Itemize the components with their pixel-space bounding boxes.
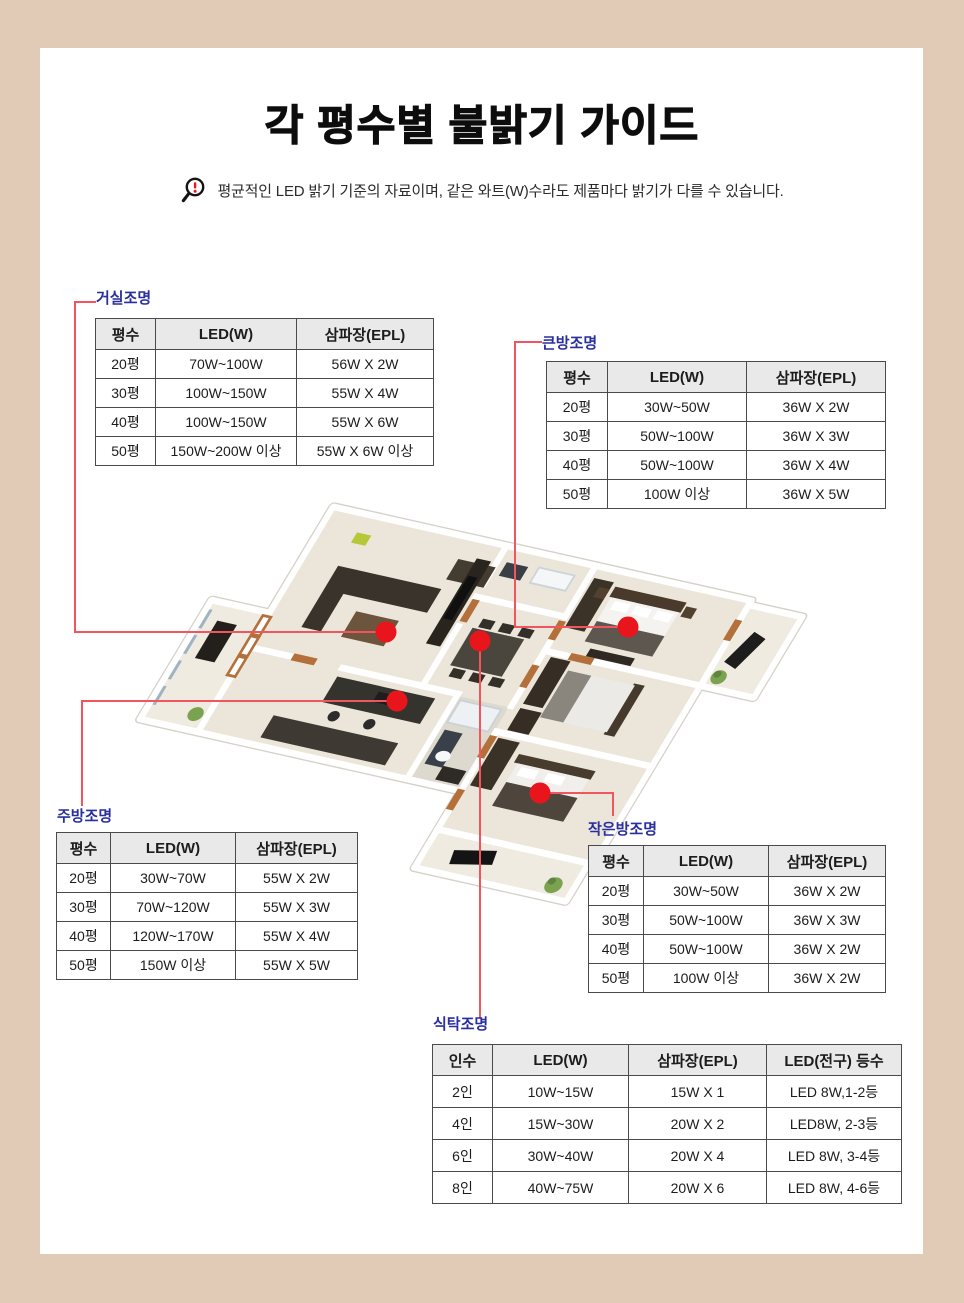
table-cell: 36W X 3W	[769, 906, 886, 935]
table-row: 20평30W~50W36W X 2W	[589, 877, 886, 906]
table-row: 50평150W 이상55W X 5W	[57, 951, 358, 980]
magnifier-alert-icon	[180, 176, 208, 204]
table-cell: 30W~50W	[608, 393, 747, 422]
kitchen-lighting-table: 평수LED(W)삼파장(EPL)20평30W~70W55W X 2W30평70W…	[56, 832, 357, 980]
column-header: LED(W)	[156, 319, 297, 350]
data-table: 인수LED(W)삼파장(EPL)LED(전구) 등수2인10W~15W15W X…	[432, 1044, 902, 1204]
table-row: 40평50W~100W36W X 4W	[547, 451, 886, 480]
table-cell: 40평	[57, 922, 111, 951]
column-header: LED(W)	[111, 833, 236, 864]
table-cell: 50평	[547, 480, 608, 509]
table-cell: 30평	[547, 422, 608, 451]
table-row: 50평100W 이상36W X 5W	[547, 480, 886, 509]
label-kitchen-lighting: 주방조명	[57, 805, 112, 826]
table-cell: 15W~30W	[493, 1108, 629, 1140]
table-header-row: 평수LED(W)삼파장(EPL)	[96, 319, 434, 350]
table-cell: 50W~100W	[608, 422, 747, 451]
table-cell: 150W~200W 이상	[156, 437, 297, 466]
table-row: 30평50W~100W36W X 3W	[547, 422, 886, 451]
table-cell: 70W~100W	[156, 350, 297, 379]
label-dining-lighting: 식탁조명	[433, 1013, 488, 1034]
table-cell: 36W X 4W	[747, 451, 886, 480]
data-table: 평수LED(W)삼파장(EPL)20평30W~50W36W X 2W30평50W…	[546, 361, 886, 509]
column-header: 삼파장(EPL)	[747, 362, 886, 393]
table-cell: 40평	[589, 935, 644, 964]
table-cell: 55W X 4W	[297, 379, 434, 408]
column-header: LED(W)	[644, 846, 769, 877]
table-cell: 20평	[589, 877, 644, 906]
table-cell: 50W~100W	[608, 451, 747, 480]
table-cell: LED 8W, 3-4등	[767, 1140, 902, 1172]
column-header: 삼파장(EPL)	[236, 833, 358, 864]
data-table: 평수LED(W)삼파장(EPL)20평30W~50W36W X 2W30평50W…	[588, 845, 886, 993]
page-title: 각 평수별 불밝기 가이드	[0, 92, 964, 153]
table-header-row: 인수LED(W)삼파장(EPL)LED(전구) 등수	[433, 1045, 902, 1076]
table-cell: 56W X 2W	[297, 350, 434, 379]
table-cell: 30평	[589, 906, 644, 935]
table-cell: 40평	[96, 408, 156, 437]
column-header: 평수	[589, 846, 644, 877]
table-cell: 36W X 2W	[769, 964, 886, 993]
table-cell: 20W X 4	[629, 1140, 767, 1172]
table-cell: LED 8W, 4-6등	[767, 1172, 902, 1204]
table-cell: 30W~50W	[644, 877, 769, 906]
label-living-room-lighting: 거실조명	[96, 287, 151, 308]
table-cell: 50평	[589, 964, 644, 993]
column-header: 평수	[57, 833, 111, 864]
table-cell: 8인	[433, 1172, 493, 1204]
table-cell: LED 8W,1-2등	[767, 1076, 902, 1108]
table-cell: 30W~40W	[493, 1140, 629, 1172]
column-header: 삼파장(EPL)	[769, 846, 886, 877]
table-row: 40평100W~150W55W X 6W	[96, 408, 434, 437]
table-cell: 100W 이상	[644, 964, 769, 993]
infographic-page: 각 평수별 불밝기 가이드 평균적인 LED 밝기 기준의 자료이며, 같은 와…	[0, 0, 964, 1303]
table-row: 40평50W~100W36W X 2W	[589, 935, 886, 964]
big-room-lighting-table: 평수LED(W)삼파장(EPL)20평30W~50W36W X 2W30평50W…	[546, 361, 885, 509]
table-row: 20평30W~70W55W X 2W	[57, 864, 358, 893]
data-table: 평수LED(W)삼파장(EPL)20평30W~70W55W X 2W30평70W…	[56, 832, 358, 980]
table-cell: 55W X 4W	[236, 922, 358, 951]
column-header: 삼파장(EPL)	[297, 319, 434, 350]
table-row: 6인30W~40W20W X 4LED 8W, 3-4등	[433, 1140, 902, 1172]
table-row: 4인15W~30W20W X 2LED8W, 2-3등	[433, 1108, 902, 1140]
table-row: 30평100W~150W55W X 4W	[96, 379, 434, 408]
notice-text: 평균적인 LED 밝기 기준의 자료이며, 같은 와트(W)수라도 제품마다 밝…	[217, 180, 783, 201]
table-row: 20평30W~50W36W X 2W	[547, 393, 886, 422]
table-cell: LED8W, 2-3등	[767, 1108, 902, 1140]
table-cell: 50W~100W	[644, 906, 769, 935]
table-row: 50평150W~200W 이상55W X 6W 이상	[96, 437, 434, 466]
table-cell: 100W 이상	[608, 480, 747, 509]
table-cell: 55W X 2W	[236, 864, 358, 893]
table-cell: 15W X 1	[629, 1076, 767, 1108]
table-cell: 55W X 6W	[297, 408, 434, 437]
table-cell: 55W X 5W	[236, 951, 358, 980]
table-cell: 30평	[96, 379, 156, 408]
label-small-room-lighting: 작은방조명	[588, 818, 657, 839]
column-header: 평수	[547, 362, 608, 393]
table-cell: 20평	[547, 393, 608, 422]
table-cell: 150W 이상	[111, 951, 236, 980]
table-row: 20평70W~100W56W X 2W	[96, 350, 434, 379]
data-table: 평수LED(W)삼파장(EPL)20평70W~100W56W X 2W30평10…	[95, 318, 434, 466]
table-row: 2인10W~15W15W X 1LED 8W,1-2등	[433, 1076, 902, 1108]
table-header-row: 평수LED(W)삼파장(EPL)	[57, 833, 358, 864]
table-header-row: 평수LED(W)삼파장(EPL)	[547, 362, 886, 393]
table-cell: 20평	[57, 864, 111, 893]
table-cell: 36W X 3W	[747, 422, 886, 451]
table-cell: 70W~120W	[111, 893, 236, 922]
table-cell: 36W X 2W	[747, 393, 886, 422]
table-row: 30평50W~100W36W X 3W	[589, 906, 886, 935]
table-cell: 20평	[96, 350, 156, 379]
column-header: LED(전구) 등수	[767, 1045, 902, 1076]
table-cell: 55W X 6W 이상	[297, 437, 434, 466]
living-room-lighting-table: 평수LED(W)삼파장(EPL)20평70W~100W56W X 2W30평10…	[95, 318, 433, 466]
table-cell: 50평	[57, 951, 111, 980]
table-row: 40평120W~170W55W X 4W	[57, 922, 358, 951]
table-cell: 20W X 6	[629, 1172, 767, 1204]
notice-row: 평균적인 LED 밝기 기준의 자료이며, 같은 와트(W)수라도 제품마다 밝…	[0, 176, 964, 204]
table-cell: 100W~150W	[156, 408, 297, 437]
table-cell: 120W~170W	[111, 922, 236, 951]
table-cell: 50W~100W	[644, 935, 769, 964]
label-big-room-lighting: 큰방조명	[542, 332, 597, 353]
table-cell: 36W X 2W	[769, 877, 886, 906]
small-room-lighting-table: 평수LED(W)삼파장(EPL)20평30W~50W36W X 2W30평50W…	[588, 845, 885, 993]
table-cell: 20W X 2	[629, 1108, 767, 1140]
table-cell: 36W X 5W	[747, 480, 886, 509]
table-cell: 55W X 3W	[236, 893, 358, 922]
table-row: 50평100W 이상36W X 2W	[589, 964, 886, 993]
table-cell: 30W~70W	[111, 864, 236, 893]
table-row: 8인40W~75W20W X 6LED 8W, 4-6등	[433, 1172, 902, 1204]
table-row: 30평70W~120W55W X 3W	[57, 893, 358, 922]
table-cell: 100W~150W	[156, 379, 297, 408]
column-header: 평수	[96, 319, 156, 350]
table-cell: 30평	[57, 893, 111, 922]
table-cell: 4인	[433, 1108, 493, 1140]
table-header-row: 평수LED(W)삼파장(EPL)	[589, 846, 886, 877]
dining-lighting-table: 인수LED(W)삼파장(EPL)LED(전구) 등수2인10W~15W15W X…	[432, 1044, 901, 1204]
column-header: 인수	[433, 1045, 493, 1076]
table-cell: 50평	[96, 437, 156, 466]
column-header: LED(W)	[608, 362, 747, 393]
table-cell: 36W X 2W	[769, 935, 886, 964]
column-header: LED(W)	[493, 1045, 629, 1076]
table-cell: 10W~15W	[493, 1076, 629, 1108]
column-header: 삼파장(EPL)	[629, 1045, 767, 1076]
table-cell: 40W~75W	[493, 1172, 629, 1204]
table-cell: 40평	[547, 451, 608, 480]
table-cell: 2인	[433, 1076, 493, 1108]
table-cell: 6인	[433, 1140, 493, 1172]
